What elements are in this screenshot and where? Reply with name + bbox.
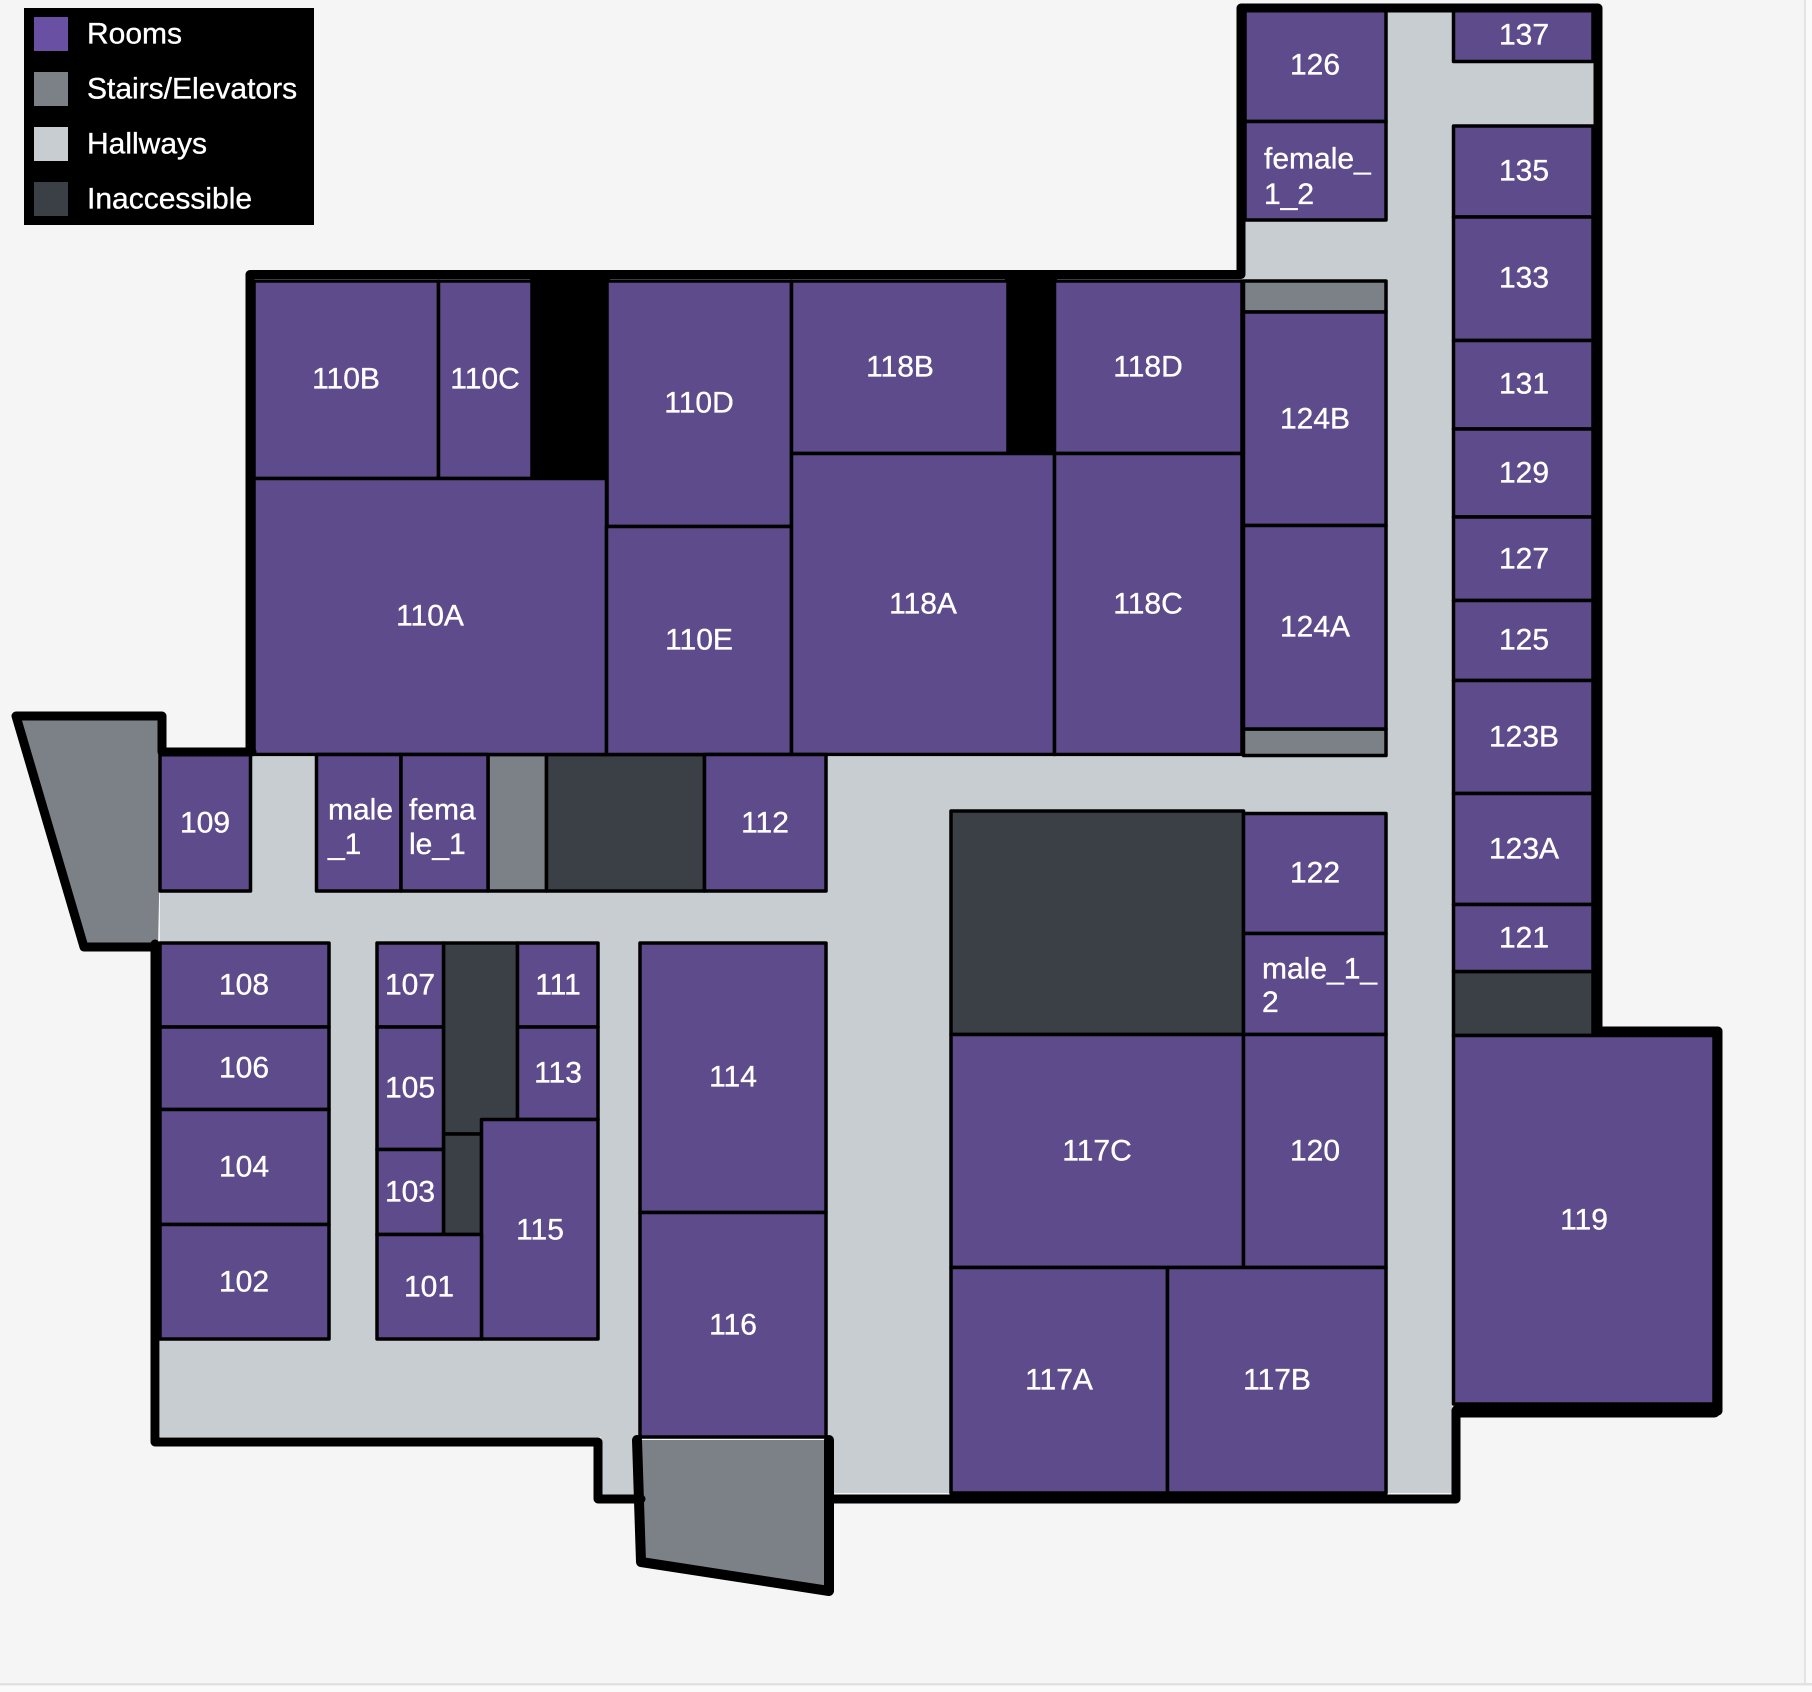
svg-text:Rooms: Rooms	[87, 18, 182, 51]
svg-text:Inaccessible: Inaccessible	[87, 183, 252, 216]
svg-text:120: 120	[1290, 1135, 1340, 1168]
svg-text:106: 106	[219, 1052, 269, 1085]
svg-text:124A: 124A	[1280, 611, 1350, 644]
svg-text:104: 104	[219, 1151, 269, 1184]
svg-text:112: 112	[741, 807, 789, 840]
svg-text:118C: 118C	[1113, 588, 1183, 621]
svg-text:135: 135	[1499, 155, 1549, 188]
svg-text:103: 103	[385, 1176, 435, 1209]
svg-text:114: 114	[709, 1061, 757, 1094]
svg-text:123A: 123A	[1489, 833, 1559, 866]
svg-text:108: 108	[219, 969, 269, 1002]
svg-text:Stairs/Elevators: Stairs/Elevators	[87, 73, 297, 106]
svg-text:110A: 110A	[396, 600, 464, 633]
svg-text:107: 107	[385, 969, 435, 1002]
svg-text:110E: 110E	[665, 624, 733, 657]
svg-text:118A: 118A	[889, 588, 957, 621]
svg-text:Hallways: Hallways	[87, 128, 207, 161]
svg-text:127: 127	[1499, 543, 1549, 576]
svg-text:118B: 118B	[866, 351, 934, 384]
svg-text:117A: 117A	[1025, 1364, 1093, 1397]
svg-text:121: 121	[1499, 922, 1549, 955]
svg-text:110B: 110B	[312, 363, 380, 396]
svg-text:115: 115	[516, 1214, 564, 1247]
svg-text:111: 111	[535, 969, 581, 1002]
svg-text:101: 101	[404, 1271, 454, 1304]
svg-text:131: 131	[1499, 368, 1549, 401]
svg-text:110D: 110D	[664, 387, 734, 420]
svg-text:118D: 118D	[1113, 351, 1183, 384]
svg-text:113: 113	[534, 1057, 582, 1090]
svg-text:129: 129	[1499, 457, 1549, 490]
svg-text:109: 109	[180, 807, 230, 840]
svg-text:117C: 117C	[1062, 1135, 1132, 1168]
svg-text:102: 102	[219, 1266, 269, 1299]
svg-text:119: 119	[1560, 1204, 1608, 1237]
svg-text:123B: 123B	[1489, 721, 1559, 754]
svg-text:116: 116	[709, 1309, 757, 1342]
svg-text:122: 122	[1290, 857, 1340, 890]
svg-text:133: 133	[1499, 262, 1549, 295]
svg-text:126: 126	[1290, 49, 1340, 82]
svg-text:125: 125	[1499, 624, 1549, 657]
svg-text:117B: 117B	[1243, 1364, 1311, 1397]
svg-text:105: 105	[385, 1072, 435, 1105]
svg-text:124B: 124B	[1280, 403, 1350, 436]
svg-text:137: 137	[1499, 19, 1549, 52]
svg-text:110C: 110C	[450, 363, 520, 396]
